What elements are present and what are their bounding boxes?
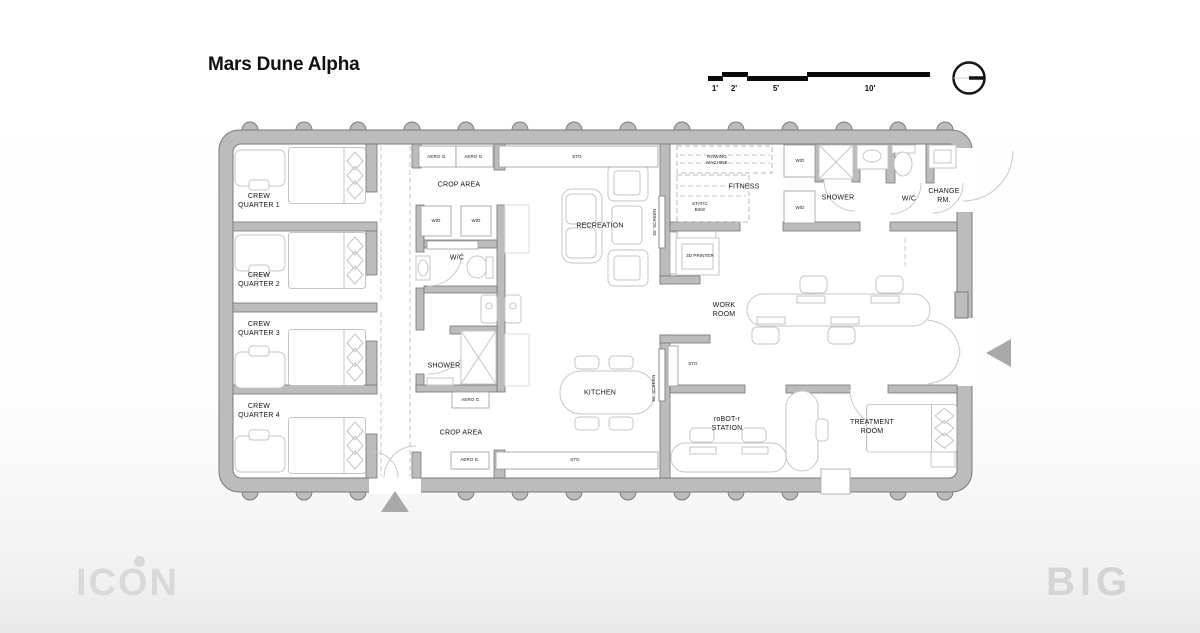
label-static-bike: STATIC BIKE — [692, 201, 708, 213]
label-shower-ne: SHOWER — [822, 193, 855, 202]
label-aero-g-3: AERO G. — [461, 397, 480, 403]
label-wd-fitness-1: W/D — [795, 158, 804, 164]
label-crew-quarter-4: CREW QUARTER 4 — [238, 402, 280, 420]
floor-plan-drawing — [0, 0, 1200, 633]
label-screen-kitchen: 55' SCREEN — [651, 375, 657, 402]
label-3d-printer: 3D PRINTER — [686, 253, 714, 259]
label-stg-top: STG — [572, 154, 582, 160]
label-wc-ne: W/C — [902, 194, 916, 203]
label-shower-core: SHOWER — [428, 361, 461, 370]
label-wd-core-1: W/D — [431, 218, 440, 224]
label-aero-g-2: AERO G. — [464, 154, 483, 160]
floor-plan-page: Mars Dune Alpha 1' 2' 5' 10' CREW QUARTE… — [0, 0, 1200, 633]
label-wc-core: W/C — [450, 253, 464, 262]
label-crop-area-top: CROP AREA — [438, 180, 481, 189]
page-title: Mars Dune Alpha — [208, 54, 360, 76]
label-rowing-machine: ROWING MACHINE — [706, 154, 727, 166]
scale-tick-5: 5' — [773, 84, 779, 93]
scale-segment-5 — [747, 76, 808, 81]
label-stg-closet: STG — [688, 361, 698, 367]
icon-logo-text: ICON — [76, 562, 179, 604]
north-indicator-icon — [948, 58, 990, 100]
icon-logo: ICON — [76, 562, 179, 605]
label-robot-station: roBOT-r STATION — [712, 415, 743, 433]
label-work-room: WORK ROOM — [713, 301, 736, 319]
label-wd-core-2: W/D — [471, 218, 480, 224]
big-logo-text: BIG — [1046, 560, 1132, 604]
label-recreation: RECREATION — [576, 221, 623, 230]
label-crew-quarter-3: CREW QUARTER 3 — [238, 320, 280, 338]
scale-bar: 1' 2' 5' 10' — [708, 71, 940, 97]
label-screen-recreation: 55' SCREEN — [652, 209, 658, 236]
label-change-room: CHANGE RM. — [928, 187, 959, 205]
label-aero-g-1: AERO G. — [427, 154, 446, 160]
label-crew-quarter-2: CREW QUARTER 2 — [238, 271, 280, 289]
icon-logo-dot — [134, 556, 145, 567]
south-entrance-arrow-icon — [381, 491, 409, 512]
label-treatment-room: TREATMENT ROOM — [850, 418, 894, 436]
scale-segment-10 — [807, 72, 930, 77]
label-aero-g-4: AERO G. — [460, 457, 479, 463]
label-crew-quarter-1: CREW QUARTER 1 — [238, 192, 280, 210]
label-wd-fitness-2: W/D — [795, 205, 804, 211]
scale-segment-1 — [708, 76, 723, 81]
label-fitness: FITNESS — [729, 182, 760, 191]
east-airlock-arrow-icon — [986, 339, 1011, 367]
scale-segment-2 — [722, 72, 748, 77]
scale-tick-10: 10' — [865, 84, 876, 93]
label-kitchen: KITCHEN — [584, 388, 616, 397]
scale-tick-1: 1' — [712, 84, 718, 93]
big-logo: BIG — [1046, 560, 1132, 605]
label-stg-bottom: STG — [570, 457, 580, 463]
label-crop-area-bottom: CROP AREA — [440, 428, 483, 437]
scale-tick-2: 2' — [731, 84, 737, 93]
